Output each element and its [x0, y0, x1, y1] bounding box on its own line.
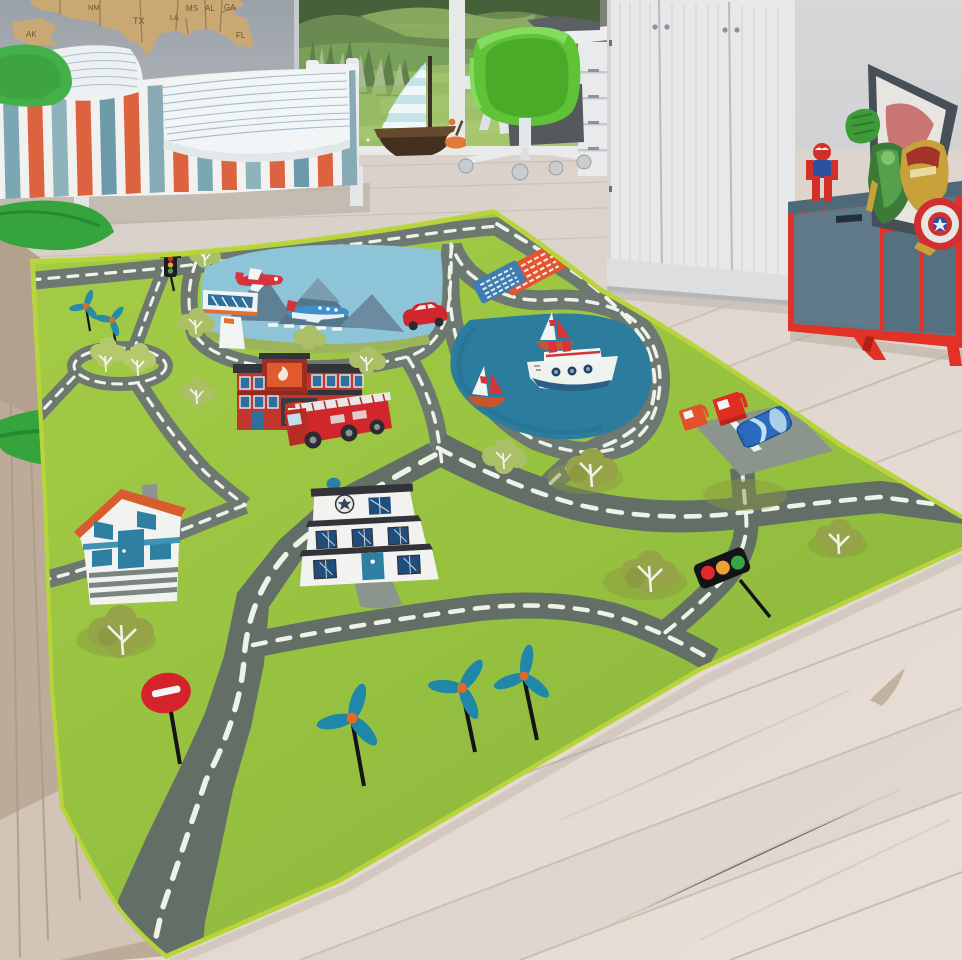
svg-text:TX: TX — [133, 16, 145, 26]
svg-text:GA: GA — [224, 3, 236, 12]
svg-text:AK: AK — [26, 30, 37, 39]
svg-text:NM: NM — [88, 3, 100, 12]
svg-text:LA: LA — [170, 15, 179, 22]
svg-text:FL: FL — [236, 31, 246, 40]
svg-text:AL: AL — [205, 4, 215, 13]
svg-text:MS: MS — [186, 4, 198, 13]
